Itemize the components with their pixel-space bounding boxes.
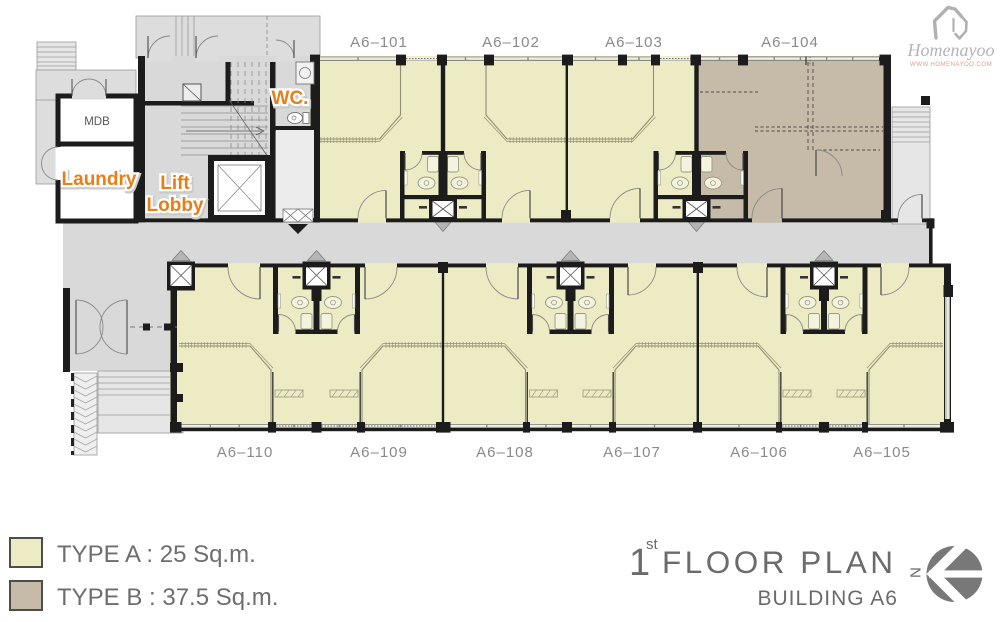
svg-text:A6–105: A6–105 [853,444,911,461]
svg-text:Lift: Lift [160,173,190,194]
svg-text:MDB: MDB [84,116,110,128]
svg-text:A6–109: A6–109 [350,444,408,461]
svg-text:FLOOR PLAN: FLOOR PLAN [662,544,897,580]
svg-text:TYPE B : 37.5 Sq.m.: TYPE B : 37.5 Sq.m. [57,584,278,611]
svg-text:Laundry: Laundry [62,169,137,190]
svg-text:A6–106: A6–106 [730,444,788,461]
svg-text:WWW.HOMENAYOO.COM: WWW.HOMENAYOO.COM [910,61,992,68]
svg-text:A6–104: A6–104 [761,34,819,51]
svg-text:A6–110: A6–110 [217,444,274,461]
svg-text:st: st [646,536,659,553]
svg-text:BUILDING A6: BUILDING A6 [757,587,898,610]
svg-text:WC.: WC. [272,88,309,109]
svg-text:A6–103: A6–103 [605,34,663,51]
svg-text:A6–101: A6–101 [350,34,408,51]
svg-text:Homenayoo: Homenayoo [907,40,995,60]
svg-text:TYPE A : 25 Sq.m.: TYPE A : 25 Sq.m. [57,541,256,568]
svg-text:A6–108: A6–108 [476,444,534,461]
svg-text:A6–107: A6–107 [603,444,661,461]
svg-text:A6–102: A6–102 [482,34,540,51]
svg-text:N: N [907,567,924,578]
svg-text:Lobby: Lobby [147,195,204,216]
